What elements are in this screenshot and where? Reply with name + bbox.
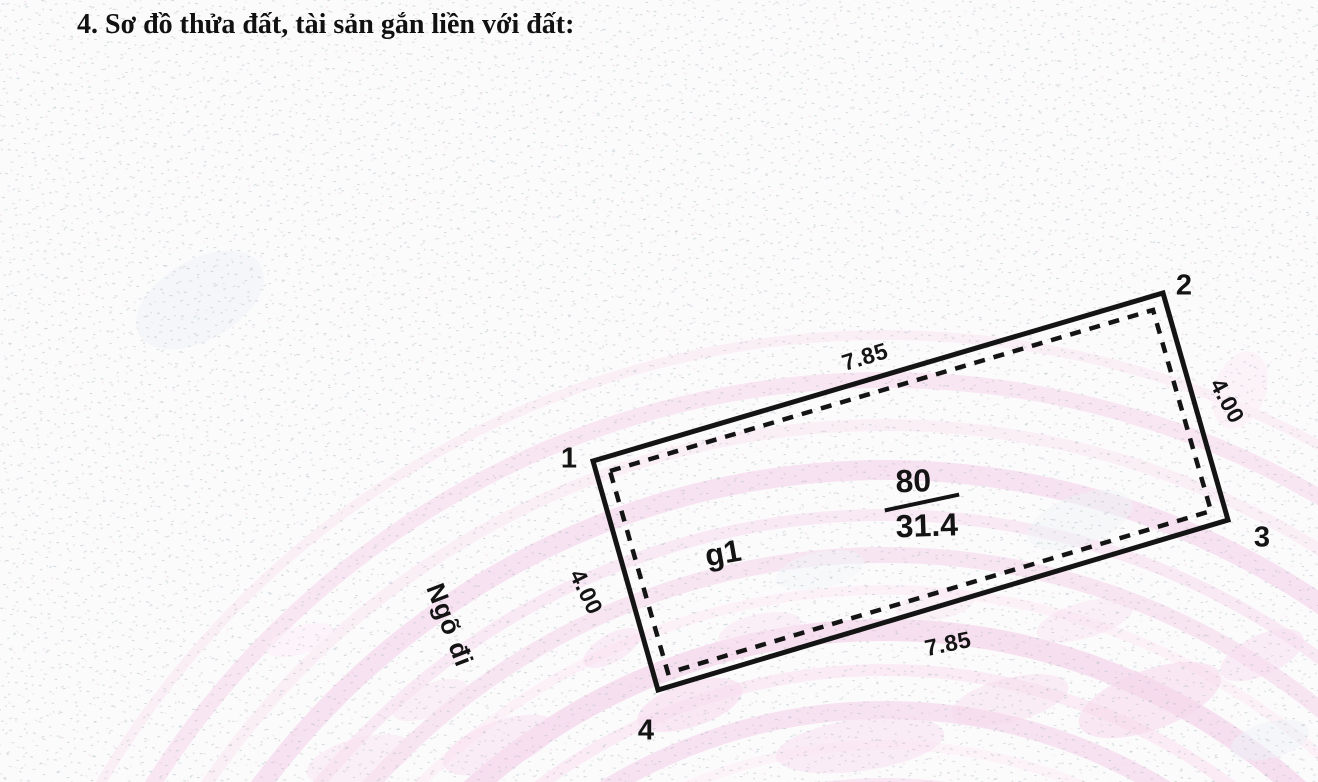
- certificate-page: 4. Sơ đồ thửa đất, tài sản gắn liền với …: [0, 0, 1318, 782]
- corner-label-2: 2: [1176, 272, 1192, 301]
- building-label: g1: [702, 535, 743, 572]
- corner-label-3: 3: [1254, 524, 1270, 553]
- parcel-diagram: [0, 0, 1318, 782]
- corner-label-4: 4: [638, 717, 654, 746]
- plot-area: 31.4: [895, 508, 958, 542]
- parcel-annotation: 80 31.4: [883, 463, 962, 543]
- corner-label-1: 1: [561, 445, 577, 474]
- section-title: 4. Sơ đồ thửa đất, tài sản gắn liền với …: [77, 11, 574, 39]
- plot-number: 80: [895, 464, 932, 497]
